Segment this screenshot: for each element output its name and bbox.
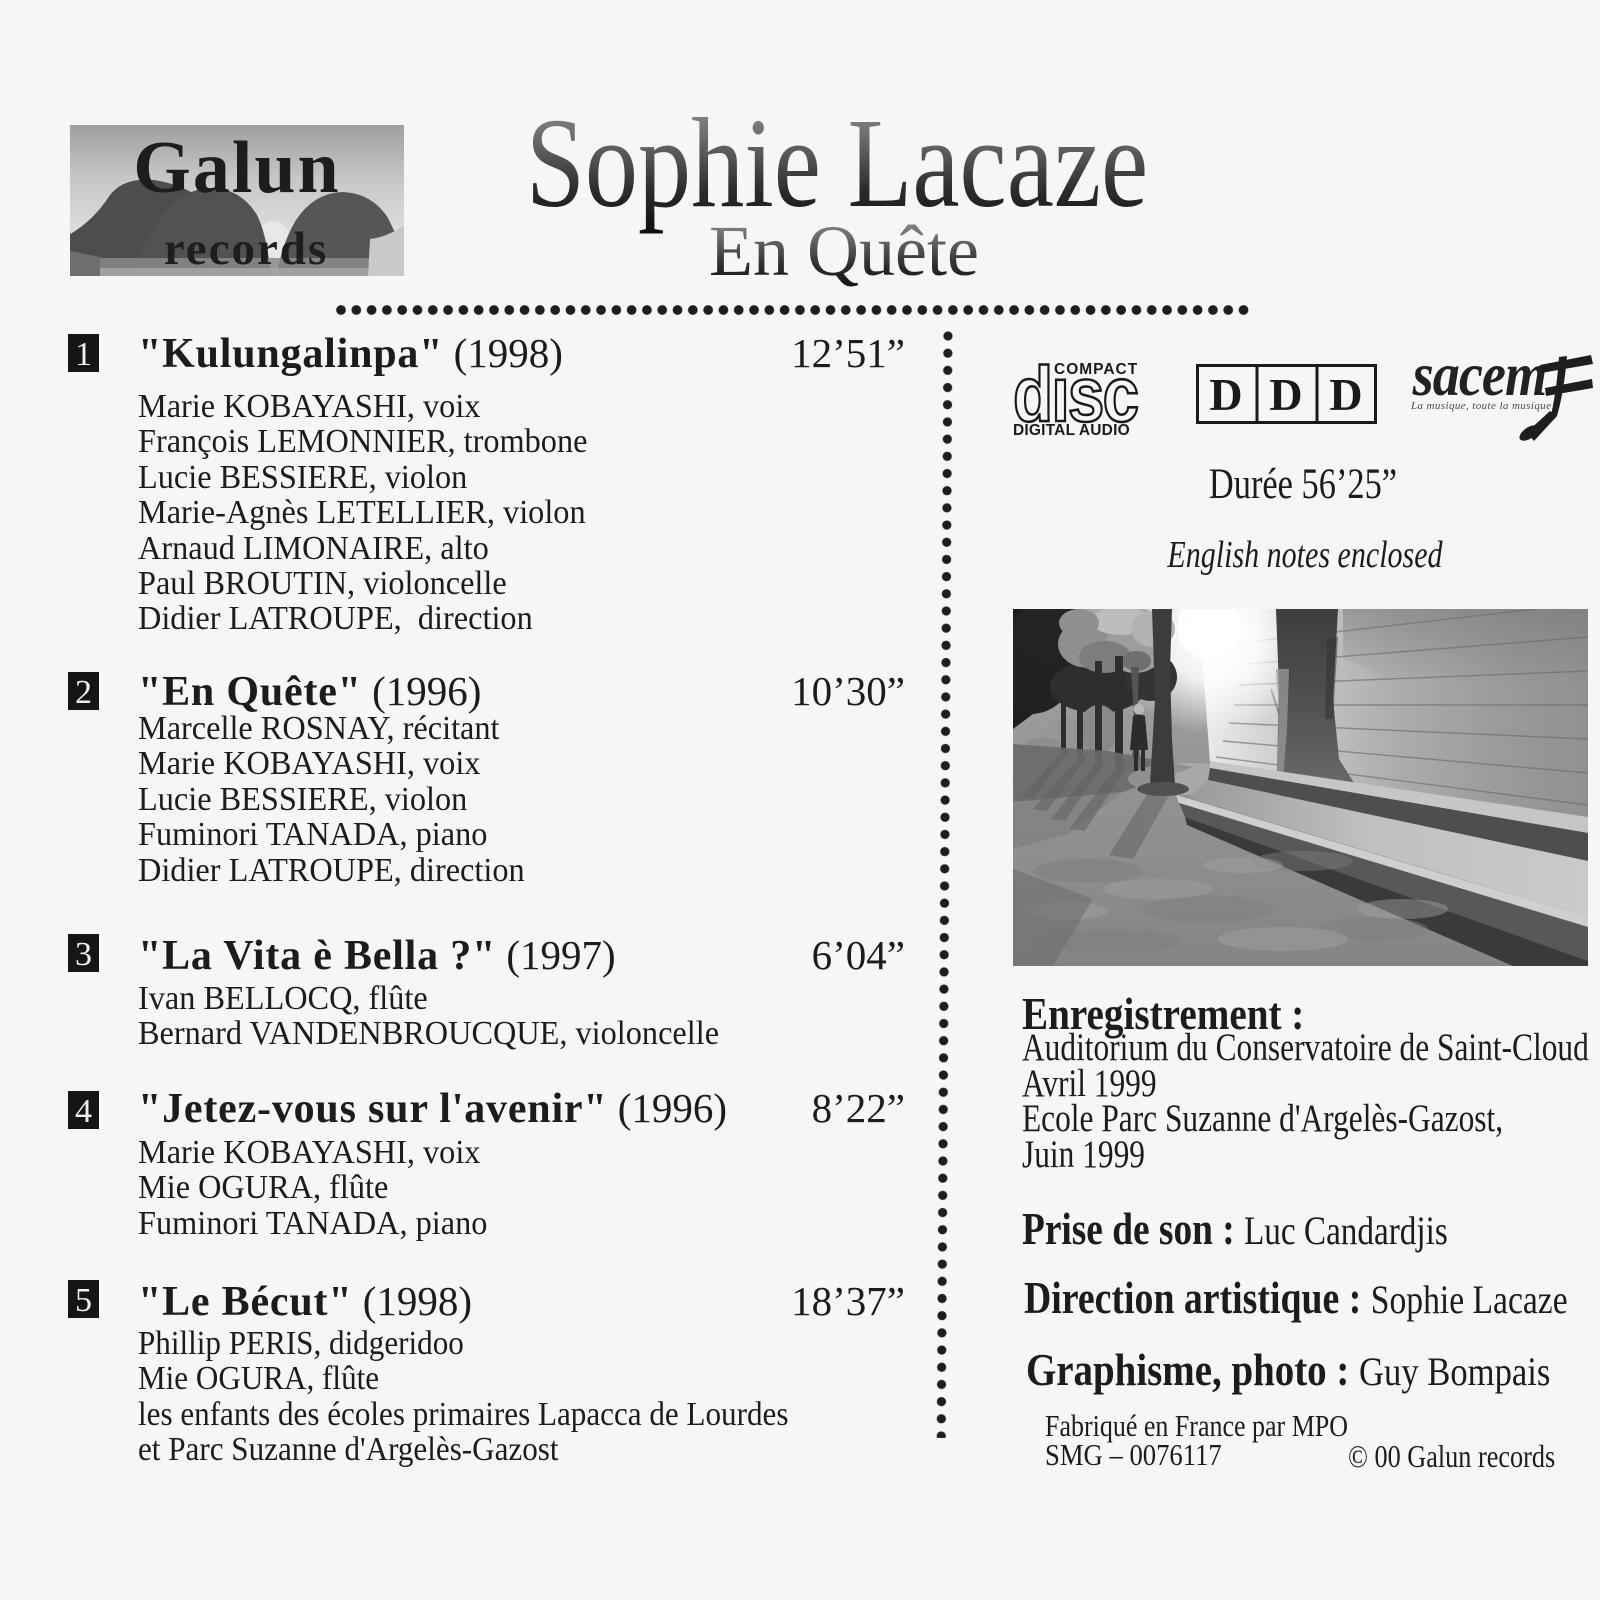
svg-text:D: D xyxy=(1329,369,1362,420)
svg-text:D: D xyxy=(1209,369,1242,420)
svg-text:D: D xyxy=(1269,369,1302,420)
svg-text:records: records xyxy=(164,223,329,275)
svg-text:La musique, toute la musique: La musique, toute la musique xyxy=(1410,400,1551,412)
svg-text:DIGITAL AUDIO: DIGITAL AUDIO xyxy=(1013,422,1130,438)
svg-text:Galun: Galun xyxy=(133,127,340,209)
